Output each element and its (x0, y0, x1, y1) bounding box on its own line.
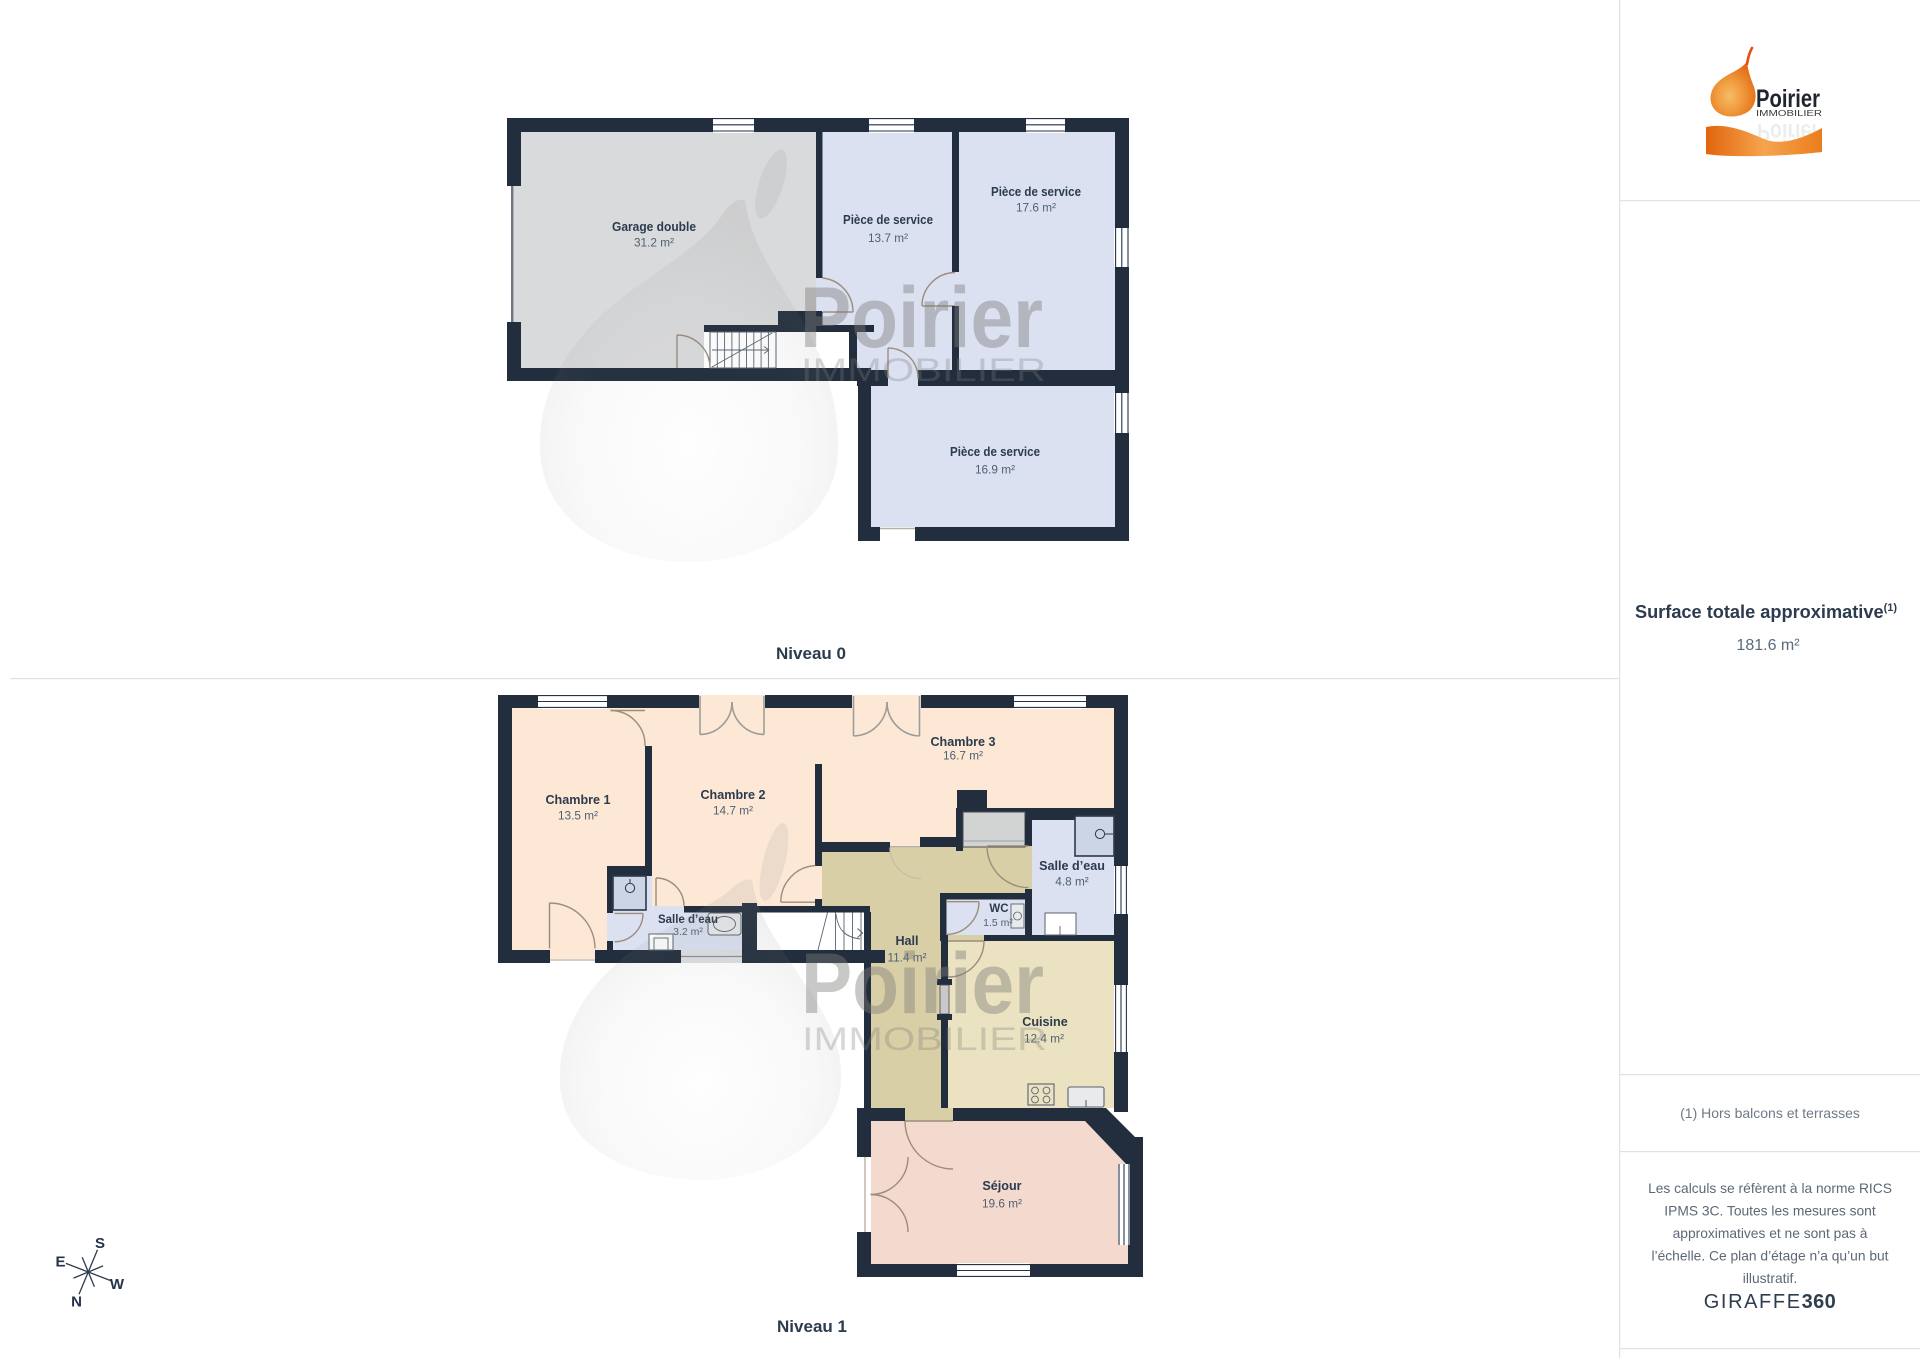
svg-text:Salle d’eau: Salle d’eau (1039, 859, 1105, 873)
svg-text:N: N (71, 1294, 82, 1311)
svg-text:approximatives et ne sont pas: approximatives et ne sont pas à (1673, 1226, 1868, 1241)
svg-text:Niveau 1: Niveau 1 (777, 1317, 847, 1336)
svg-text:Surface totale approximative(1: Surface totale approximative(1) (1635, 602, 1897, 622)
svg-text:181.6 m²: 181.6 m² (1736, 637, 1800, 654)
svg-text:31.2 m²: 31.2 m² (634, 236, 674, 250)
svg-text:WC: WC (989, 903, 1008, 915)
svg-text:13.7 m²: 13.7 m² (868, 231, 908, 245)
svg-text:IMMOBILIER: IMMOBILIER (1756, 108, 1822, 118)
svg-text:Les calculs se réfèrent à la n: Les calculs se réfèrent à la norme RICS (1648, 1181, 1892, 1196)
svg-text:16.9 m²: 16.9 m² (975, 463, 1015, 477)
svg-text:IMMOBILIER: IMMOBILIER (802, 1021, 1047, 1057)
svg-text:Séjour: Séjour (982, 1179, 1021, 1193)
svg-text:1.5 m²: 1.5 m² (983, 917, 1013, 929)
svg-text:Pièce de service: Pièce de service (991, 185, 1081, 199)
svg-text:4.8 m²: 4.8 m² (1055, 875, 1089, 889)
svg-text:W: W (110, 1276, 125, 1293)
svg-text:17.6 m²: 17.6 m² (1016, 201, 1056, 215)
svg-text:(1) Hors balcons et terrasses: (1) Hors balcons et terrasses (1680, 1105, 1860, 1121)
svg-text:Pièce de service: Pièce de service (843, 213, 933, 227)
svg-text:IMMOBILIER: IMMOBILIER (801, 352, 1046, 388)
svg-text:13.5 m²: 13.5 m² (558, 809, 598, 823)
svg-text:19.6 m²: 19.6 m² (982, 1197, 1022, 1211)
svg-text:S: S (95, 1235, 105, 1252)
svg-text:IPMS 3C. Toutes les mesures so: IPMS 3C. Toutes les mesures sont (1664, 1204, 1876, 1219)
svg-text:Garage double: Garage double (612, 220, 696, 234)
svg-text:l’échelle. Ce plan d’étage n’a: l’échelle. Ce plan d’étage n’a qu’un but (1651, 1249, 1888, 1264)
svg-text:Chambre 1: Chambre 1 (545, 793, 610, 807)
svg-text:Poirier: Poirier (801, 936, 1044, 1032)
svg-text:Niveau 0: Niveau 0 (776, 644, 846, 663)
svg-text:14.7 m²: 14.7 m² (713, 804, 753, 818)
svg-text:E: E (55, 1254, 65, 1271)
svg-text:16.7 m²: 16.7 m² (943, 749, 983, 763)
svg-text:Chambre 3: Chambre 3 (930, 735, 995, 749)
svg-text:illustratif.: illustratif. (1743, 1271, 1797, 1286)
svg-text:Chambre 2: Chambre 2 (700, 788, 765, 802)
svg-text:GIRAFFE360: GIRAFFE360 (1704, 1291, 1836, 1313)
svg-text:Pièce de service: Pièce de service (950, 445, 1040, 459)
